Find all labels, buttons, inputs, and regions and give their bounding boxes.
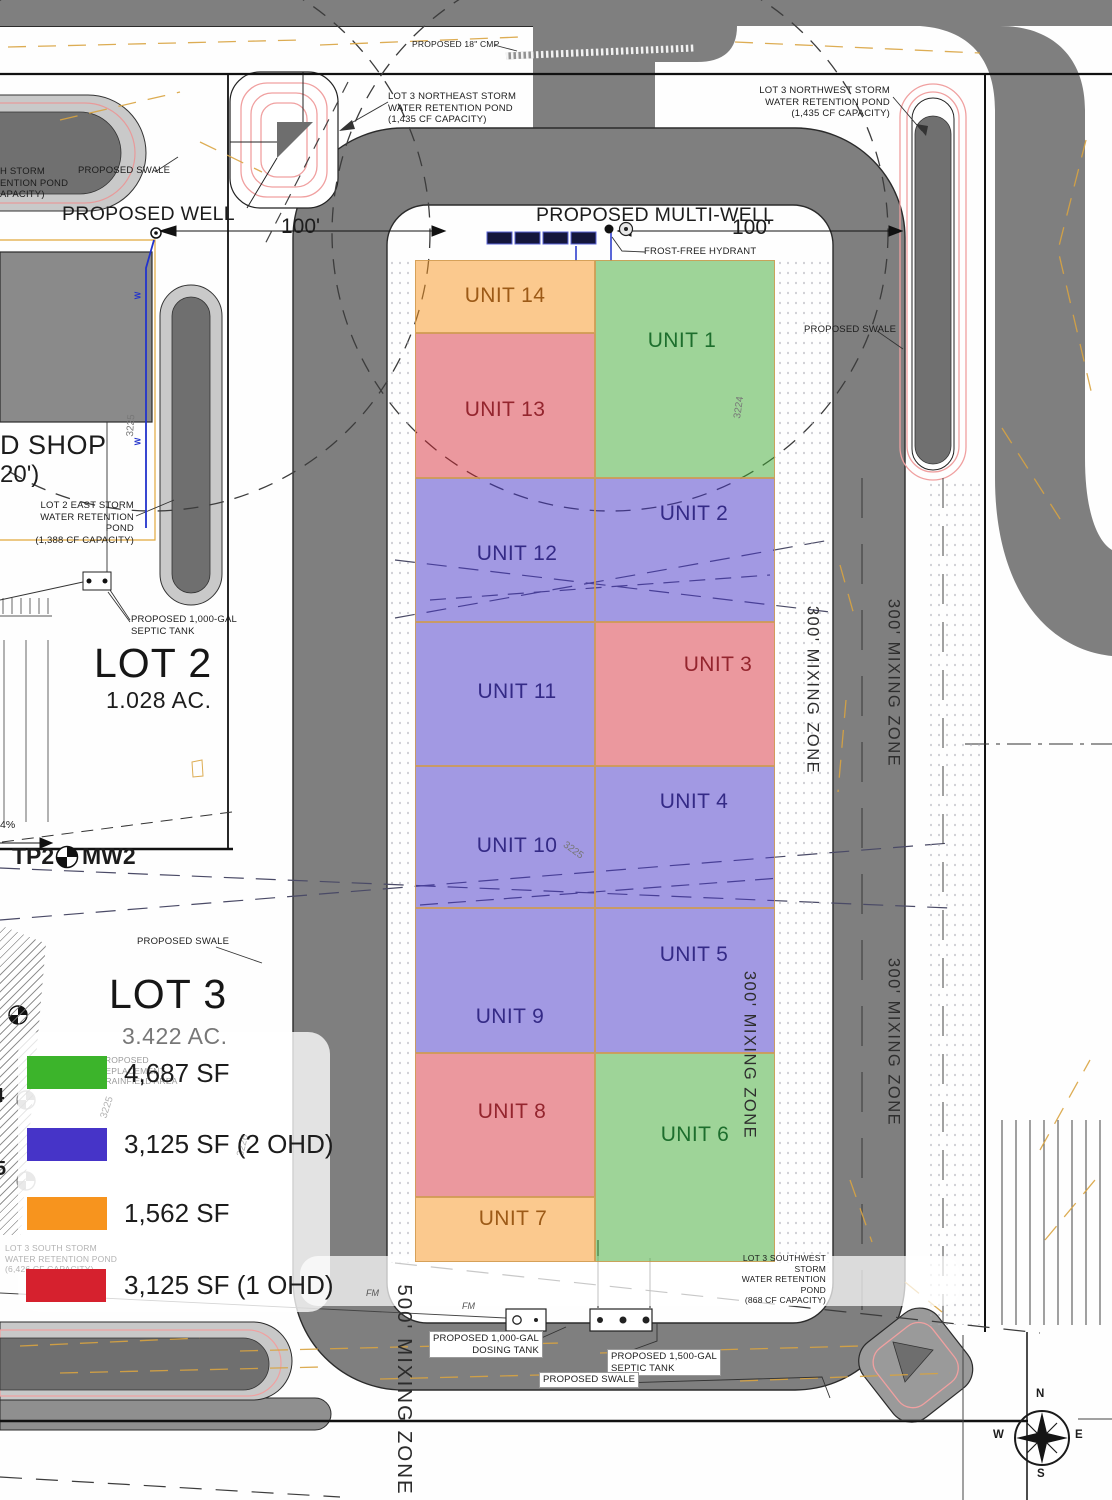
cmp-label: PROPOSED 18" CMP [412, 39, 499, 50]
waterline-w-1: W [133, 292, 142, 300]
unit-8-label: UNIT 8 [478, 1100, 547, 1124]
gravel-strip-left [388, 258, 415, 1263]
dosing-tank-icon [506, 1309, 546, 1331]
legend-swatch-red [26, 1269, 106, 1302]
legend-swatch-orange [27, 1197, 107, 1230]
well-icon [151, 228, 161, 238]
unit-11-label: UNIT 11 [477, 680, 556, 704]
compass-north: N [1036, 1388, 1044, 1400]
edge-frag-4: 4 [0, 1085, 4, 1108]
dim-100-left: 100' [281, 215, 320, 239]
unit-2-label: UNIT 2 [660, 502, 729, 526]
mixing-zone-300-c: 300' MIXING ZONE [884, 958, 903, 1126]
site-plan: LOT 3 SOUTH STORM WATER RETENTION POND (… [0, 0, 1112, 1500]
south-pond [0, 1322, 292, 1400]
mixing-zone-500: 500' MIXING ZONE [392, 1284, 416, 1495]
tp2-mw2-marker [57, 847, 78, 868]
parking-comb [1002, 1120, 1100, 1325]
legend-label-purple: 3,125 SF (2 OHD) [124, 1129, 334, 1160]
lot3-name: LOT 3 [109, 971, 227, 1018]
unit-4-area [595, 766, 775, 908]
unit-1-area [595, 260, 775, 478]
unit-3-label: UNIT 3 [684, 653, 753, 677]
lot2-name: LOT 2 [94, 640, 212, 687]
unit-8-area [415, 1053, 595, 1197]
gravel-strip-east [927, 480, 983, 1325]
dim-100-right: 100' [732, 216, 771, 240]
tp2-label: TP2 [12, 843, 54, 870]
nw-pond-label: LOT 3 NORTHWEST STORM WATER RETENTION PO… [742, 85, 890, 120]
northeast-pond [230, 72, 338, 208]
compass-west: W [993, 1429, 1004, 1441]
edge-pond-label: H STORM ENTION POND APACITY) [0, 166, 68, 201]
swale-label-east: PROPOSED SWALE [804, 324, 896, 336]
swale-label-lot3: PROPOSED SWALE [137, 936, 229, 948]
sw-pond-label: LOT 3 SOUTHWEST STORM WATER RETENTION PO… [722, 1253, 826, 1306]
unit-7-label: UNIT 7 [479, 1207, 548, 1231]
mixing-zone-300-a: 300' MIXING ZONE [803, 606, 822, 774]
compass-icon [1015, 1411, 1069, 1465]
shop-label: D SHOP [0, 430, 107, 461]
fm-label-2: FM [462, 1301, 475, 1311]
shop-building [0, 252, 152, 422]
mixing-zone-300-d: 300' MIXING ZONE [740, 971, 759, 1139]
unit-12-label: UNIT 12 [477, 542, 558, 566]
slope-label: 4% [0, 819, 15, 831]
compass-east: E [1075, 1429, 1083, 1441]
legend-label-green: 4,687 SF [124, 1058, 230, 1089]
mixing-zone-300-b: 300' MIXING ZONE [884, 599, 903, 767]
unit-5-label: UNIT 5 [660, 943, 729, 967]
edge-frag-5: 5 [0, 1158, 6, 1181]
ne-pond-label: LOT 3 NORTHEAST STORM WATER RETENTION PO… [388, 91, 516, 126]
proposed-well-label: PROPOSED WELL [62, 203, 235, 226]
mw2-label: MW2 [82, 843, 136, 870]
legend-label-orange: 1,562 SF [124, 1198, 230, 1229]
shop-dim-label: 20') [0, 461, 39, 489]
unit-14-label: UNIT 14 [465, 284, 546, 308]
septic-1000-label: PROPOSED 1,000-GAL SEPTIC TANK [131, 614, 237, 637]
compass-south: S [1037, 1468, 1045, 1480]
legend-swatch-green [27, 1056, 107, 1089]
unit-9-area [415, 908, 595, 1053]
swale-label-bottom: PROPOSED SWALE [539, 1372, 639, 1388]
contour-3225-a: 3225 [125, 414, 138, 437]
unit-10-label: UNIT 10 [477, 834, 558, 858]
unit-2-area [595, 478, 775, 622]
legend-swatch-purple [27, 1128, 107, 1161]
dosing-tank-label: PROPOSED 1,000-GAL DOSING TANK [429, 1331, 543, 1358]
lot2-east-pond-label: LOT 2 EAST STORM WATER RETENTION POND (1… [26, 500, 134, 546]
unit-3-area [595, 622, 775, 766]
unit-13-label: UNIT 13 [465, 398, 546, 422]
unit-4-label: UNIT 4 [660, 790, 729, 814]
lot3-area: 3.422 AC. [122, 1023, 228, 1050]
unit-1-label: UNIT 1 [648, 329, 717, 353]
swale-label-nw: PROPOSED SWALE [78, 165, 170, 177]
legend-label-red: 3,125 SF (1 OHD) [124, 1270, 334, 1301]
waterline-w-2: W [133, 438, 142, 446]
lot2-east-pond [160, 285, 222, 605]
lot2-area: 1.028 AC. [106, 687, 212, 714]
hydrant-label: FROST-FREE HYDRANT [644, 246, 756, 258]
fm-label-1: FM [366, 1288, 379, 1298]
northwest-pond [900, 84, 966, 480]
unit-9-label: UNIT 9 [476, 1005, 545, 1029]
unit-6-label: UNIT 6 [661, 1123, 730, 1147]
